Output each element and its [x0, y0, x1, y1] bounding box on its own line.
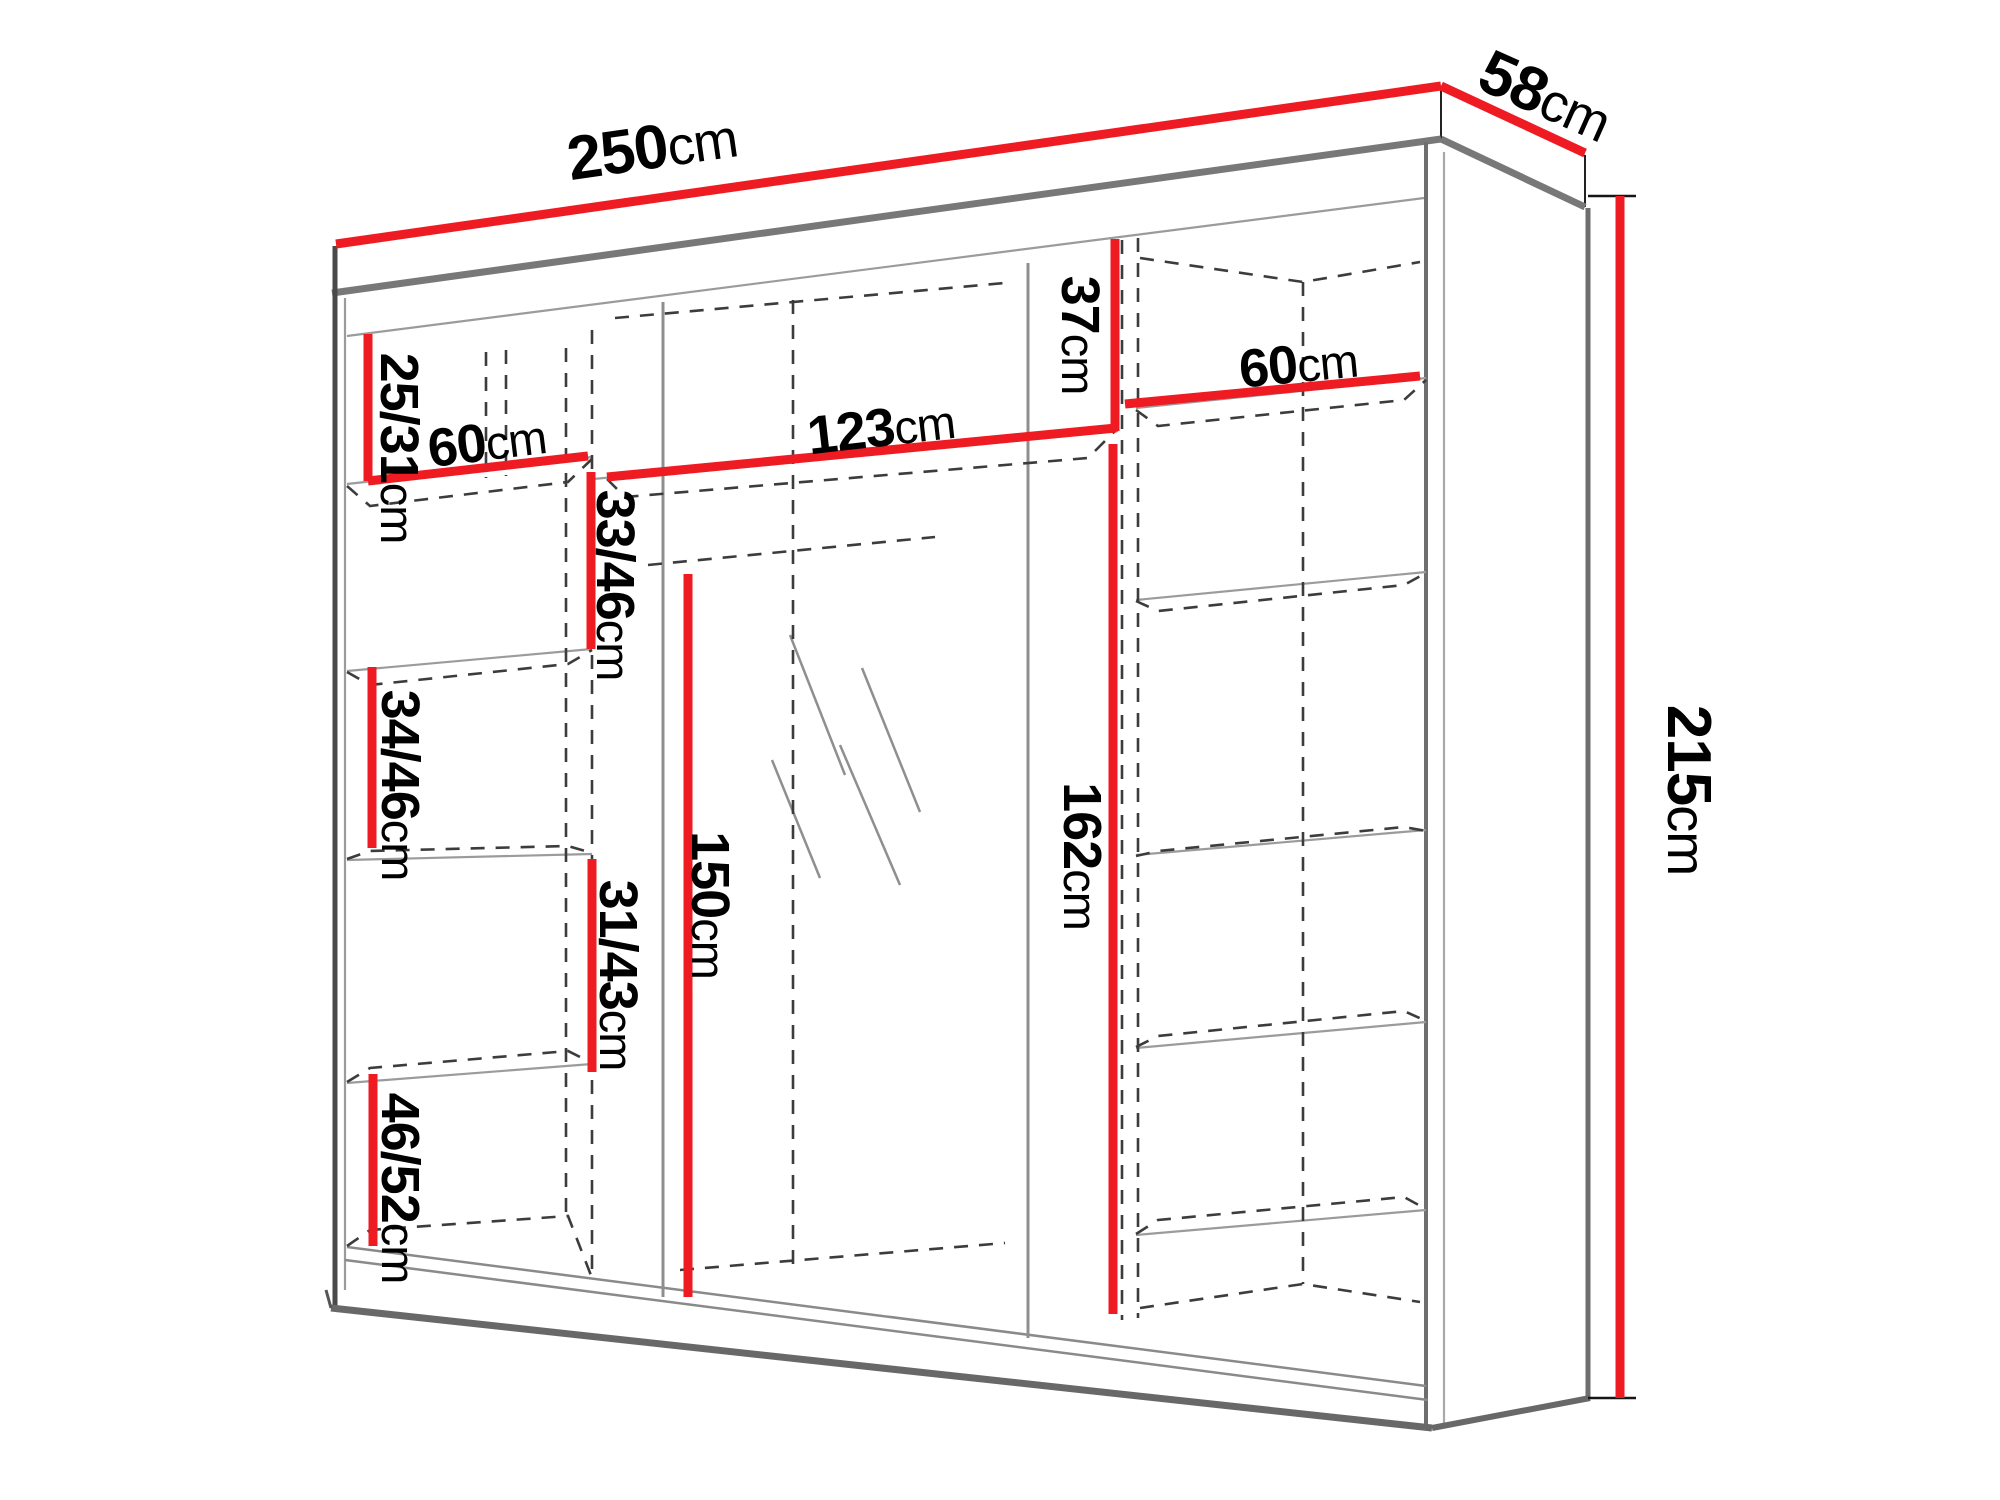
dim-label-left-width: 60cm [424, 405, 549, 479]
wardrobe-dimension-diagram: 250cm 58cm 215cm 25/31cm 60cm 33/46cm 34… [0, 0, 2000, 1500]
dim-label-height: 215cm [1654, 705, 1723, 875]
dim-label-center-top-gap: 37cm [1050, 276, 1110, 395]
top-outer-edge [336, 89, 1585, 247]
top-side-edge [1441, 139, 1585, 207]
diagram-canvas: 250cm 58cm 215cm 25/31cm 60cm 33/46cm 34… [0, 0, 2000, 1500]
dim-label-center-width: 123cm [804, 390, 958, 466]
bottom-side-edge [1432, 1398, 1590, 1428]
dim-label-left-top-gap: 25/31cm [369, 353, 429, 544]
dim-label-left-gap-4: 31/43cm [588, 880, 648, 1071]
dim-label-left-gap-3: 34/46cm [370, 690, 430, 881]
dim-label-width: 250cm [563, 101, 742, 194]
dim-label-center-height: 162cm [1052, 782, 1112, 930]
shelf-front-edges [347, 378, 1426, 1235]
dim-label-mirror-height: 150cm [680, 831, 740, 979]
dim-label-left-gap-2: 33/46cm [585, 490, 645, 681]
carcass-outline [326, 88, 1590, 1428]
dimension-lines [336, 86, 1636, 1398]
dim-label-right-width: 60cm [1236, 329, 1360, 400]
dim-label-left-gap-5: 46/52cm [370, 1093, 430, 1284]
bottom-left-notch [326, 1290, 331, 1308]
bottom-front-edge [331, 1308, 1432, 1428]
